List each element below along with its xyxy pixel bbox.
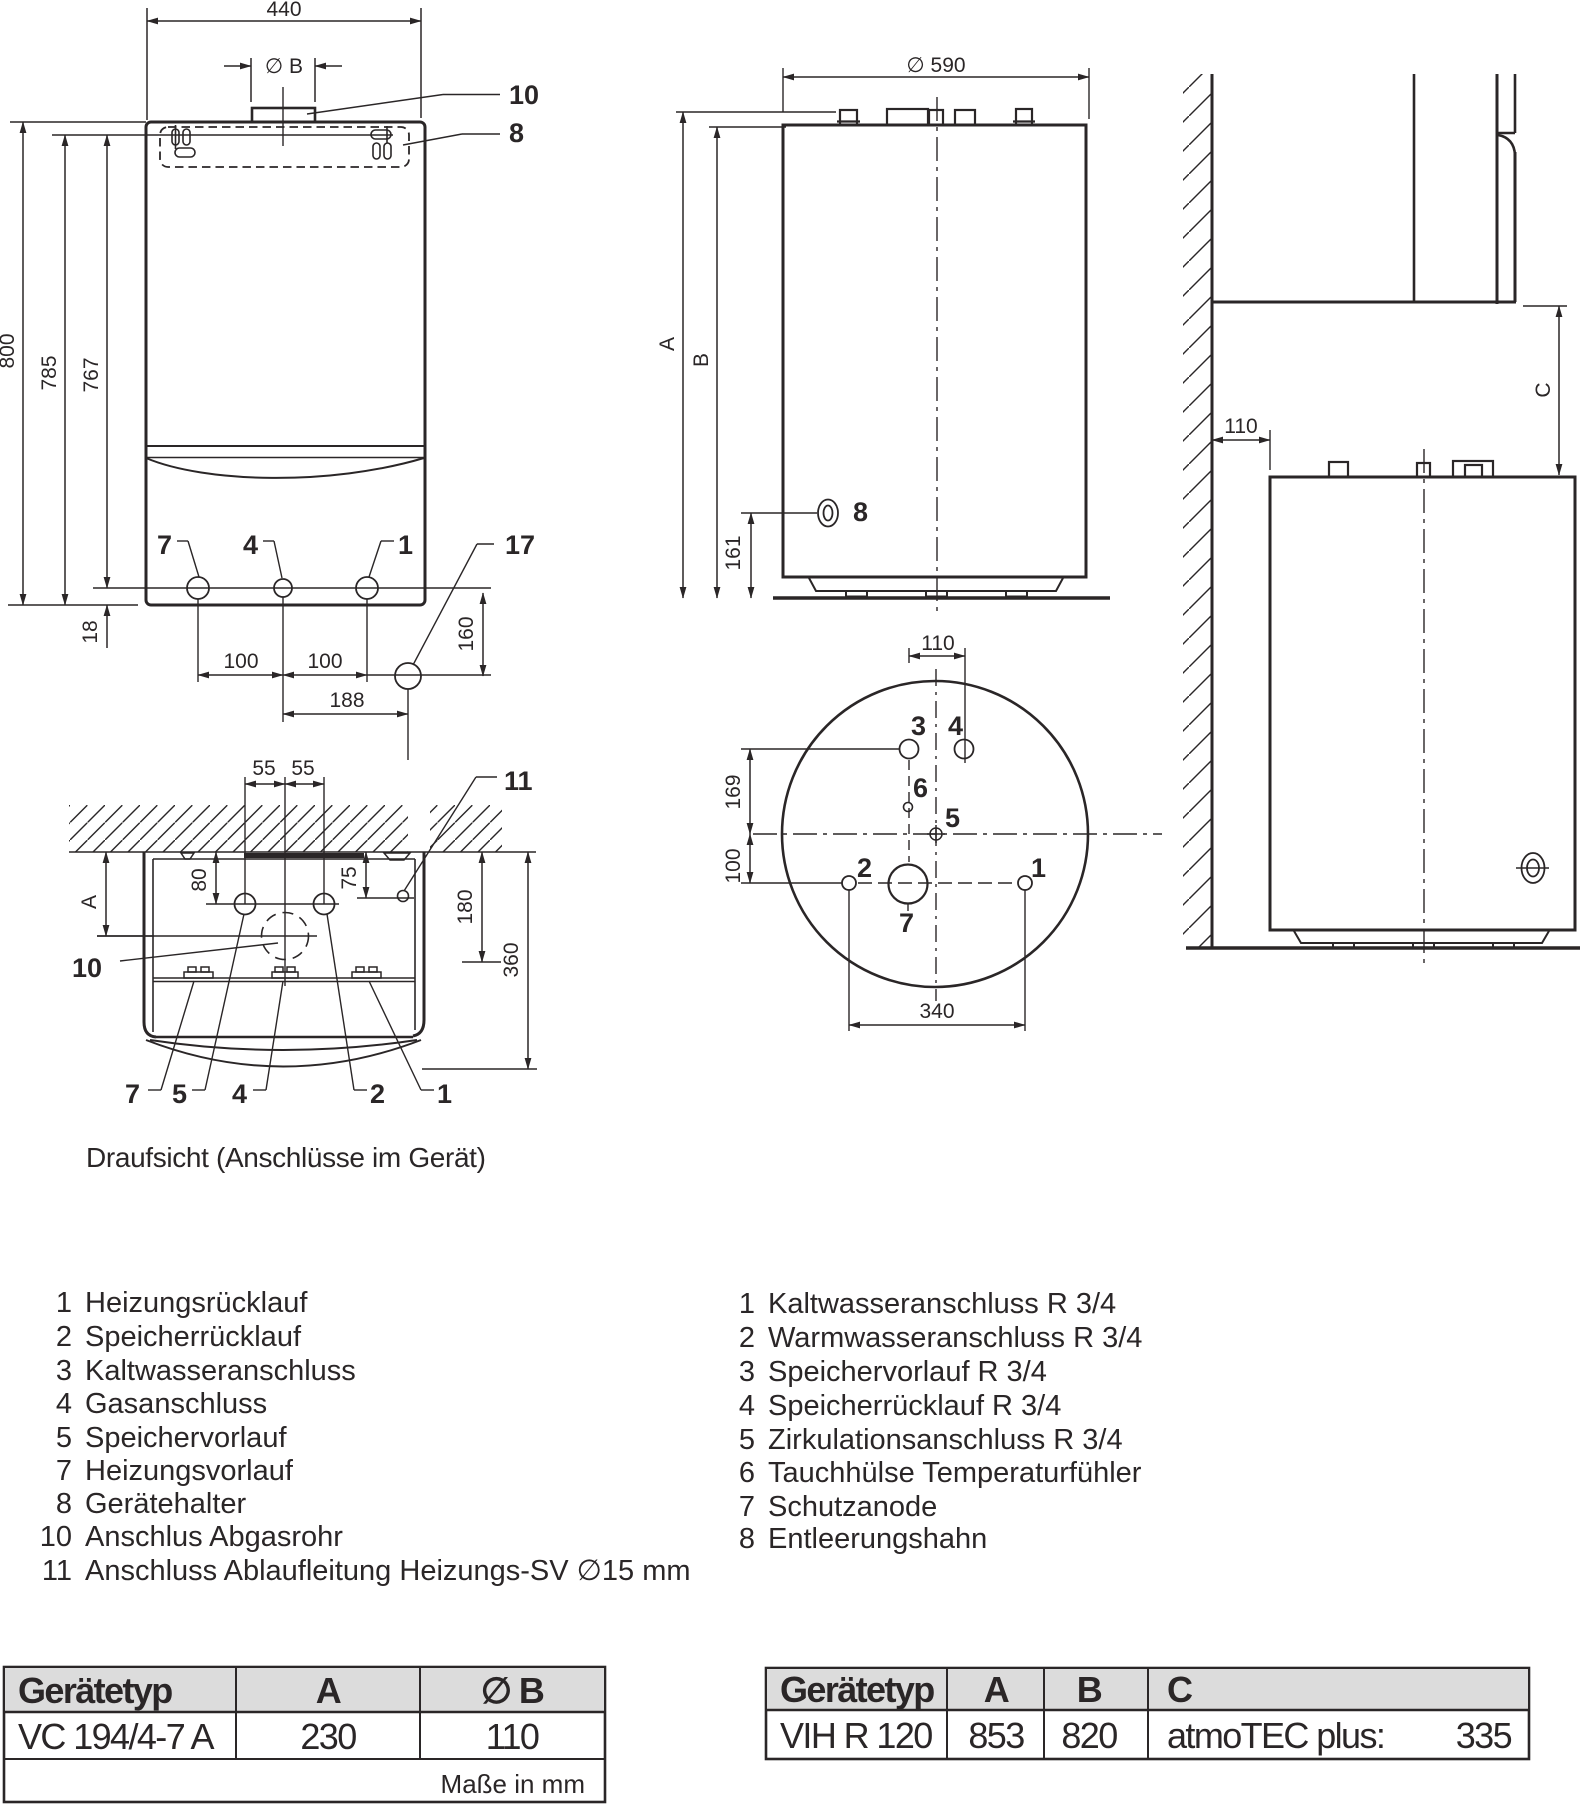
svg-text:2: 2 bbox=[370, 1079, 385, 1109]
svg-text:6: 6 bbox=[739, 1457, 755, 1489]
svg-text:Speicherrücklauf: Speicherrücklauf bbox=[85, 1321, 302, 1353]
svg-text:Gerätehalter: Gerätehalter bbox=[85, 1488, 247, 1520]
svg-text:180: 180 bbox=[454, 889, 477, 924]
svg-text:10: 10 bbox=[40, 1521, 72, 1553]
svg-text:1: 1 bbox=[437, 1079, 452, 1109]
svg-text:853: 853 bbox=[968, 1715, 1024, 1756]
svg-text:785: 785 bbox=[38, 355, 61, 390]
svg-text:4: 4 bbox=[56, 1388, 72, 1420]
svg-text:A: A bbox=[984, 1669, 1010, 1710]
svg-text:VIH R 120: VIH R 120 bbox=[780, 1715, 932, 1756]
svg-text:7: 7 bbox=[739, 1491, 755, 1523]
svg-text:440: 440 bbox=[266, 0, 301, 21]
svg-text:335: 335 bbox=[1456, 1715, 1512, 1756]
svg-text:188: 188 bbox=[329, 689, 364, 712]
svg-text:Gerätetyp: Gerätetyp bbox=[780, 1669, 934, 1710]
svg-text:230: 230 bbox=[300, 1716, 356, 1757]
svg-text:11: 11 bbox=[504, 766, 533, 796]
svg-text:8: 8 bbox=[56, 1488, 72, 1520]
svg-text:100: 100 bbox=[722, 848, 745, 883]
svg-text:Maße in mm: Maße in mm bbox=[441, 1769, 585, 1799]
svg-text:Gerätetyp: Gerätetyp bbox=[18, 1670, 172, 1711]
svg-text:Speichervorlauf: Speichervorlauf bbox=[85, 1422, 287, 1454]
svg-text:55: 55 bbox=[291, 757, 314, 780]
svg-text:110: 110 bbox=[486, 1716, 539, 1757]
svg-text:10: 10 bbox=[72, 953, 102, 983]
svg-text:∅ B: ∅ B bbox=[481, 1670, 544, 1711]
svg-text:4: 4 bbox=[948, 711, 963, 741]
svg-text:Anschlus Abgasrohr: Anschlus Abgasrohr bbox=[85, 1521, 343, 1553]
svg-text:7: 7 bbox=[125, 1079, 140, 1109]
svg-text:∅ 590: ∅ 590 bbox=[906, 54, 965, 77]
svg-text:5: 5 bbox=[739, 1424, 755, 1456]
svg-text:C: C bbox=[1532, 382, 1555, 397]
svg-text:4: 4 bbox=[243, 530, 258, 560]
svg-text:1: 1 bbox=[739, 1288, 755, 1320]
svg-text:Draufsicht (Anschlüsse im Gerä: Draufsicht (Anschlüsse im Gerät) bbox=[86, 1142, 486, 1173]
svg-text:atmoTEC plus:: atmoTEC plus: bbox=[1167, 1715, 1384, 1756]
svg-text:7: 7 bbox=[157, 530, 172, 560]
svg-text:Tauchhülse Temperaturfühler: Tauchhülse Temperaturfühler bbox=[768, 1457, 1142, 1489]
svg-text:80: 80 bbox=[188, 868, 211, 891]
svg-text:800: 800 bbox=[0, 333, 19, 368]
svg-text:A: A bbox=[656, 337, 679, 351]
svg-text:Entleerungshahn: Entleerungshahn bbox=[768, 1523, 987, 1555]
svg-text:5: 5 bbox=[945, 803, 960, 833]
svg-text:Anschluss Ablaufleitung Heizun: Anschluss Ablaufleitung Heizungs-SV ∅15 … bbox=[85, 1555, 691, 1587]
svg-text:3: 3 bbox=[56, 1355, 72, 1387]
svg-text:Gasanschluss: Gasanschluss bbox=[85, 1388, 267, 1420]
svg-text:8: 8 bbox=[739, 1523, 755, 1555]
svg-text:B: B bbox=[690, 353, 713, 367]
svg-text:2: 2 bbox=[739, 1322, 755, 1354]
svg-text:360: 360 bbox=[500, 942, 523, 977]
svg-text:∅ B: ∅ B bbox=[265, 55, 303, 78]
svg-text:75: 75 bbox=[338, 866, 361, 889]
svg-text:3: 3 bbox=[911, 711, 926, 741]
svg-text:1: 1 bbox=[398, 530, 413, 560]
svg-text:160: 160 bbox=[455, 616, 478, 651]
svg-text:4: 4 bbox=[232, 1079, 247, 1109]
svg-text:Heizungsvorlauf: Heizungsvorlauf bbox=[85, 1455, 294, 1487]
svg-text:18: 18 bbox=[79, 620, 102, 643]
svg-text:A: A bbox=[316, 1670, 342, 1711]
svg-text:5: 5 bbox=[56, 1422, 72, 1454]
svg-text:Speichervorlauf R 3/4: Speichervorlauf R 3/4 bbox=[768, 1356, 1047, 1388]
svg-text:B: B bbox=[1077, 1669, 1102, 1710]
svg-text:Kaltwasseranschluss: Kaltwasseranschluss bbox=[85, 1355, 356, 1387]
svg-text:6: 6 bbox=[913, 773, 928, 803]
svg-text:2: 2 bbox=[56, 1321, 72, 1353]
svg-text:55: 55 bbox=[252, 757, 275, 780]
svg-text:C: C bbox=[1167, 1669, 1193, 1710]
svg-text:7: 7 bbox=[56, 1455, 72, 1487]
svg-text:Schutzanode: Schutzanode bbox=[768, 1491, 937, 1523]
svg-text:1: 1 bbox=[1031, 853, 1046, 883]
svg-text:8: 8 bbox=[509, 118, 524, 148]
svg-text:Speicherrücklauf R 3/4: Speicherrücklauf R 3/4 bbox=[768, 1390, 1061, 1422]
svg-text:Warmwasseranschluss R 3/4: Warmwasseranschluss R 3/4 bbox=[768, 1322, 1142, 1354]
svg-text:7: 7 bbox=[899, 908, 914, 938]
svg-text:1: 1 bbox=[56, 1287, 72, 1319]
svg-text:3: 3 bbox=[739, 1356, 755, 1388]
svg-text:8: 8 bbox=[853, 497, 868, 527]
svg-text:110: 110 bbox=[1224, 415, 1257, 438]
svg-text:5: 5 bbox=[172, 1079, 187, 1109]
svg-text:VC 194/4-7 A: VC 194/4-7 A bbox=[18, 1716, 215, 1757]
svg-text:100: 100 bbox=[307, 650, 342, 673]
svg-text:340: 340 bbox=[919, 1000, 954, 1023]
svg-text:Heizungsrücklauf: Heizungsrücklauf bbox=[85, 1287, 308, 1319]
svg-text:169: 169 bbox=[722, 774, 745, 809]
svg-text:Kaltwasseranschluss R 3/4: Kaltwasseranschluss R 3/4 bbox=[768, 1288, 1116, 1320]
svg-text:Zirkulationsanschluss R 3/4: Zirkulationsanschluss R 3/4 bbox=[768, 1424, 1123, 1456]
svg-text:767: 767 bbox=[80, 357, 103, 392]
svg-text:161: 161 bbox=[722, 535, 745, 570]
svg-text:17: 17 bbox=[505, 530, 535, 560]
svg-text:4: 4 bbox=[739, 1390, 755, 1422]
svg-text:110: 110 bbox=[921, 632, 954, 655]
svg-text:820: 820 bbox=[1061, 1715, 1117, 1756]
svg-text:10: 10 bbox=[509, 80, 539, 110]
svg-text:2: 2 bbox=[857, 853, 872, 883]
svg-text:A: A bbox=[78, 895, 101, 909]
svg-text:100: 100 bbox=[223, 650, 258, 673]
svg-text:11: 11 bbox=[42, 1555, 72, 1587]
